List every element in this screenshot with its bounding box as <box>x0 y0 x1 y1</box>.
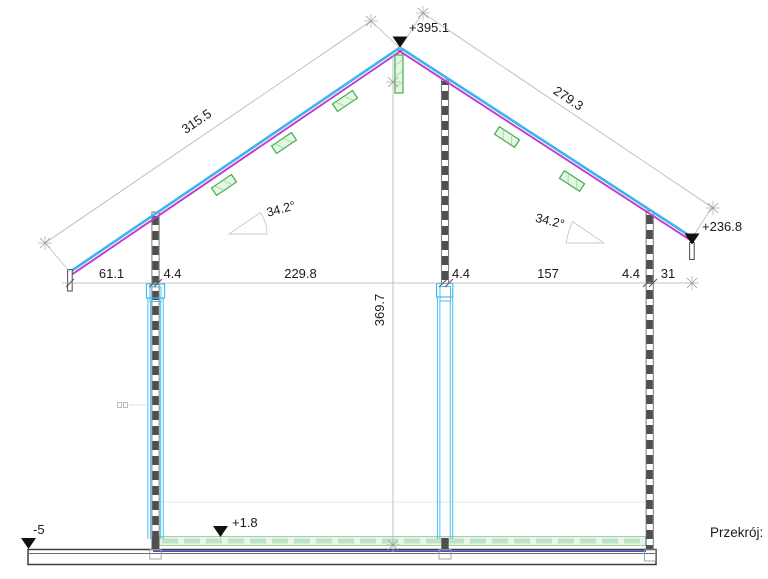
dim-room-left: 229.8 <box>284 266 317 281</box>
left-wall <box>150 212 161 559</box>
right-angle-label: 34.2° <box>534 211 566 232</box>
terrain-level-marker <box>21 538 36 549</box>
right-slope-length-label: 279.3 <box>551 83 586 113</box>
right-angle-wedge <box>566 222 604 243</box>
drawing-caption: Przekrój: <box>710 525 763 540</box>
middle-wall-sill <box>441 538 448 549</box>
terrain-level-label: -5 <box>33 522 45 537</box>
fascia-left <box>68 270 73 292</box>
ground-slab <box>28 502 656 565</box>
detail-marker <box>118 403 147 408</box>
right-wall <box>645 211 656 561</box>
left-slope-dim-line <box>45 21 371 243</box>
left-angle-label: 34.2° <box>265 199 297 220</box>
dim-middle-wall: 4.4 <box>452 266 470 281</box>
walls <box>150 80 656 561</box>
level-markers <box>21 37 700 550</box>
roof-underlay-left <box>72 50 402 274</box>
left-slope-length-label: 315.5 <box>179 106 214 137</box>
frame-outlines <box>146 284 452 540</box>
dim-left-wall: 4.4 <box>163 266 181 281</box>
dim-right-overhang: 31 <box>661 266 675 281</box>
left-wall-sill <box>152 537 159 549</box>
section-drawing: +395.1 +236.8 +1.8 -5 315.5 279.3 34.2° … <box>0 0 768 579</box>
middle-wall <box>439 80 451 559</box>
floor-level-label: +1.8 <box>232 515 258 530</box>
floor-level-marker <box>213 526 228 537</box>
dim-room-right: 157 <box>537 266 559 281</box>
ridge-level-label: +395.1 <box>409 20 449 35</box>
dim-right-wall: 4.4 <box>622 266 640 281</box>
section-drawing-canvas: +395.1 +236.8 +1.8 -5 315.5 279.3 34.2° … <box>0 0 768 579</box>
ridge-level-marker <box>393 37 408 48</box>
left-angle-wedge <box>229 213 267 234</box>
interior-height-label: 369.7 <box>372 294 387 327</box>
eave-level-marker <box>685 234 700 245</box>
fascia-right <box>690 243 695 260</box>
roof <box>68 48 695 292</box>
middle-wall-plate-inner <box>440 287 451 302</box>
ridge-board <box>395 55 403 93</box>
dimensions <box>38 6 720 552</box>
dim-left-overhang: 61.1 <box>99 266 124 281</box>
eave-level-label: +236.8 <box>702 219 742 234</box>
roof-deck-left <box>71 48 401 272</box>
rafter-blocks <box>212 55 585 195</box>
